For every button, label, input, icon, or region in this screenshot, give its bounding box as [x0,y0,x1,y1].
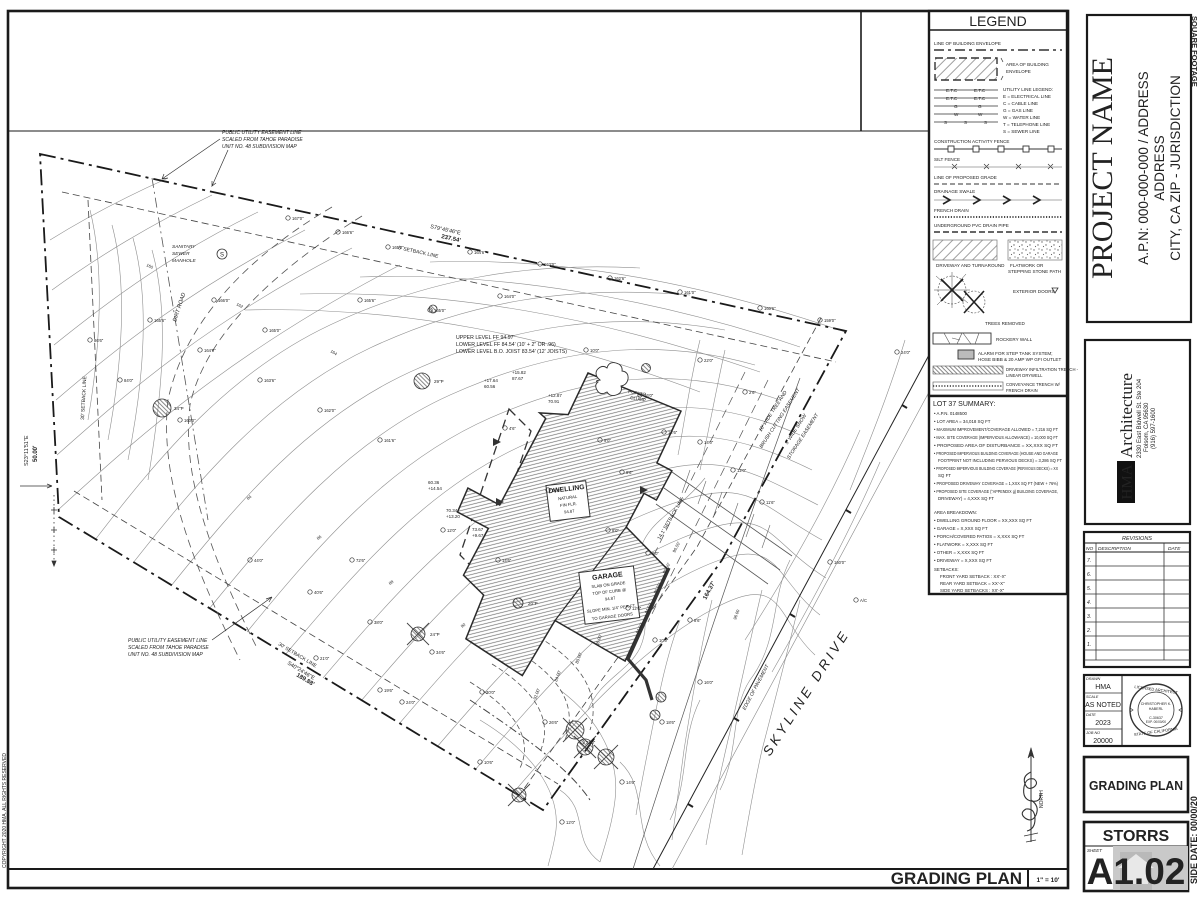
svg-text:UTILITY LINE LEGEND:: UTILITY LINE LEGEND: [1003,87,1053,92]
svg-text:163'0": 163'0" [544,262,556,267]
svg-text:W: W [954,112,959,117]
svg-text:S23°11'51"E: S23°11'51"E [24,435,30,466]
svg-text:5.: 5. [1087,586,1091,592]
svg-text:2330 East Bidwell St. Ste 204: 2330 East Bidwell St. Ste 204 [1137,378,1143,458]
svg-text:MANHOLE: MANHOLE [172,258,197,264]
svg-text:LOT 37 SUMMARY:: LOT 37 SUMMARY: [933,401,995,408]
svg-text:E.T.C: E.T.C [974,88,986,93]
svg-text:HMA: HMA [1120,464,1136,499]
svg-text:86'6": 86'6" [94,338,104,343]
svg-text:• MAX. SITE COVERAGE (IMPERVI: • MAX. SITE COVERAGE (IMPERVIOUS ALLOWAN… [934,435,1058,440]
svg-text:W = WATER LINE: W = WATER LINE [1003,115,1040,120]
svg-text:SANITARY: SANITARY [172,244,196,250]
svg-text:167'0": 167'0" [292,216,304,221]
svg-text:LOWER LEVEL B.O. JOIST 83.54': LOWER LEVEL B.O. JOIST 83.54' (12' JOIST… [456,349,567,355]
svg-text:12'0": 12'0" [632,606,642,611]
svg-text:8'6": 8'6" [626,470,633,475]
svg-text:162'6": 162'6" [614,276,626,281]
svg-text:60.56: 60.56 [484,384,496,389]
svg-text:E.T.C: E.T.C [946,96,958,101]
svg-text:HMA: HMA [1095,684,1111,691]
svg-text:UPPER LEVEL FF 94.97': UPPER LEVEL FF 94.97' [456,335,514,341]
svg-text:E.T.C: E.T.C [974,96,986,101]
svg-text:73.67: 73.67 [472,527,484,532]
svg-text:DESCRIPTION: DESCRIPTION [1098,546,1131,552]
svg-text:2023: 2023 [1095,720,1111,727]
svg-text:A/C: A/C [860,598,867,603]
svg-text:S = SEWER LINE: S = SEWER LINE [1003,129,1040,134]
svg-text:+14.54: +14.54 [428,486,442,491]
svg-text:159'0": 159'0" [824,318,836,323]
svg-text:6'0": 6'0" [652,551,659,556]
svg-text:166'0": 166'0" [218,298,230,303]
svg-text:11'6": 11'6" [766,500,775,505]
svg-text:161'6": 161'6" [384,438,396,443]
svg-text:EXP. 00/00/00: EXP. 00/00/00 [1146,720,1166,724]
svg-text:70.34: 70.34 [446,508,458,513]
svg-text:DRAWN: DRAWN [1086,677,1101,681]
svg-text:19'6": 19'6" [384,688,394,693]
svg-text:FLATWORK OR: FLATWORK OR [1010,263,1044,268]
svg-text:JOB NO: JOB NO [1085,731,1100,735]
svg-text:S: S [220,253,224,259]
svg-text:20000: 20000 [1093,738,1113,745]
svg-text:26'6": 26'6" [549,720,559,725]
svg-text:161'0": 161'0" [684,290,696,295]
svg-text:DATE: DATE [1168,546,1181,552]
svg-text:COPYRIGHT 2020 HMA. ALL RIGHT: COPYRIGHT 2020 HMA. ALL RIGHTS RESERVED [2,753,8,868]
svg-text:LEGEND: LEGEND [969,13,1027,29]
svg-text:GRADING PLAN: GRADING PLAN [1089,778,1183,793]
svg-text:6.: 6. [1087,572,1091,578]
svg-text:16'0": 16'0" [704,680,714,685]
svg-text:ENVELOPE: ENVELOPE [1006,69,1031,74]
svg-text:14'6": 14'6" [626,780,636,785]
svg-text:NORTH: NORTH [1039,790,1045,808]
svg-text:AREA BREAKDOWN:: AREA BREAKDOWN: [934,510,977,515]
svg-text:+12.87: +12.87 [548,393,562,398]
svg-text:• A.P.N. 0148500: • A.P.N. 0148500 [934,411,968,416]
svg-text:DRIVEWAY AND TURNAROUND: DRIVEWAY AND TURNAROUND [936,263,1005,268]
svg-text:DATE: DATE [1086,713,1096,717]
svg-text:LINEAR DRYWELL: LINEAR DRYWELL [1006,373,1043,378]
svg-text:UNIT NO. 48 SUBDIVISION MAP: UNIT NO. 48 SUBDIVISION MAP [222,144,297,150]
svg-text:70.91: 70.91 [548,399,560,404]
svg-text:165'6": 165'6" [364,298,376,303]
svg-text:SCALED FROM TAHOE PARADISE: SCALED FROM TAHOE PARADISE [128,645,209,651]
svg-text:C = CABLE LINE: C = CABLE LINE [1003,101,1038,106]
svg-text:40'6": 40'6" [314,590,324,595]
svg-text:10'0": 10'0" [590,348,600,353]
svg-text:LINE OF BUILDING ENVELOPE: LINE OF BUILDING ENVELOPE [934,41,1001,46]
svg-text:1" = 10': 1" = 10' [1037,877,1060,884]
svg-text:FOOTPRINT NOT INCLUDING PERVIO: FOOTPRINT NOT INCLUDING PERVIOUS DECKS) … [938,458,1062,463]
svg-text:165'0": 165'0" [434,308,446,313]
svg-text:• FLATWORK = X,XXX SQ FT: • FLATWORK = X,XXX SQ FT [934,542,993,547]
svg-text:NO: NO [1086,546,1093,552]
svg-text:FRENCH DRAIN: FRENCH DRAIN [934,208,969,213]
svg-text:SILT FENCE: SILT FENCE [934,157,960,162]
svg-text:T = TELEPHONE LINE: T = TELEPHONE LINE [1003,122,1050,127]
svg-text:14'0": 14'0" [704,440,714,445]
svg-text:12'0": 12'0" [737,468,747,473]
svg-text:84'0": 84'0" [124,378,134,383]
svg-text:CITY, CA ZIP - JURISDICTION: CITY, CA ZIP - JURISDICTION [1168,75,1183,261]
svg-text:34"P: 34"P [174,406,184,411]
svg-text:• PROPOSED IMPERVIOUS BUILDIN: • PROPOSED IMPERVIOUS BUILDING COVERAGE … [934,466,1058,471]
svg-text:+17.64: +17.64 [484,378,498,383]
svg-text:12'6": 12'6" [668,430,678,435]
svg-text:EXTERIOR DOORS: EXTERIOR DOORS [1013,289,1055,294]
svg-text:CONSTRUCTION ACTIVITY FENCE: CONSTRUCTION ACTIVITY FENCE [934,139,1009,144]
svg-text:S: S [984,120,987,125]
svg-text:LOWER LEVEL FF 84.54' (10' + 2: LOWER LEVEL FF 84.54' (10' + 2" OR .96) [456,342,556,348]
svg-text:W: W [978,112,983,117]
svg-text:164'0": 164'0" [504,294,516,299]
svg-text:24"P: 24"P [430,632,440,637]
svg-text:22'0": 22'0" [704,358,714,363]
svg-text:160'6": 160'6" [764,306,776,311]
svg-text:SCALE: SCALE [1086,695,1099,699]
svg-text:REVISIONS: REVISIONS [1122,536,1152,542]
svg-text:SEWER: SEWER [172,251,190,257]
svg-text:A1.02: A1.02 [1087,851,1186,892]
svg-text:• DRIVEWAY = X,XXX SQ FT: • DRIVEWAY = X,XXX SQ FT [934,558,992,563]
svg-text:164'0": 164'0" [204,348,216,353]
svg-text:14'6": 14'6" [502,558,512,563]
svg-text:PUBLIC UTILITY EASEMENT LINE: PUBLIC UTILITY EASEMENT LINE [128,638,208,644]
svg-text:165'6": 165'6" [154,318,166,323]
svg-text:G = GAS LINE: G = GAS LINE [1003,108,1033,113]
svg-text:+13.20: +13.20 [446,514,460,519]
svg-text:UNIT NO. 48 SUBDIVISION MAP: UNIT NO. 48 SUBDIVISION MAP [128,652,203,658]
svg-text:ALARM FOR STEP TANK SYSTEM;: ALARM FOR STEP TANK SYSTEM; [978,351,1053,356]
svg-text:24'0": 24'0" [406,700,416,705]
svg-text:21'0": 21'0" [320,656,330,661]
svg-text:ADDRESS: ADDRESS [1152,135,1167,200]
svg-text:STEPPING STONE PATH: STEPPING STONE PATH [1008,269,1061,274]
svg-text:DRAINAGE SWALE: DRAINAGE SWALE [934,189,975,194]
svg-text:12'0": 12'0" [447,528,457,533]
svg-text:CONVEYANCE TRENCH W/: CONVEYANCE TRENCH W/ [1006,382,1061,387]
svg-text:• PROPOSED AREA OF DISTURBANC: • PROPOSED AREA OF DISTURBANCE = XX,XXX … [934,443,1058,448]
svg-text:• DWELLING GROUND FLOOR = XX,: • DWELLING GROUND FLOOR = XX,XXX SQ FT [934,518,1032,523]
svg-text:FRENCH DRAIN: FRENCH DRAIN [1006,388,1038,393]
svg-text:E.T.C: E.T.C [946,88,958,93]
svg-text:E = ELECTRICAL LINE: E = ELECTRICAL LINE [1003,94,1051,99]
svg-text:160'0": 160'0" [184,418,196,423]
svg-text:4'6": 4'6" [509,426,516,431]
svg-text:• PROPOSED IMPERVIOUS BUILDIN: • PROPOSED IMPERVIOUS BUILDING COVERAGE … [934,451,1058,456]
svg-text:+9.67: +9.67 [472,533,484,538]
svg-text:G: G [978,104,982,109]
svg-text:DRIVEWAY) = 4,XXX SQ FT: DRIVEWAY) = 4,XXX SQ FT [938,496,994,501]
svg-text:34'6": 34'6" [436,650,446,655]
svg-text:G: G [954,104,958,109]
svg-text:A.P.N: 000-000-000 / ADDRESS: A.P.N: 000-000-000 / ADDRESS [1136,71,1151,264]
svg-text:164'6": 164'6" [474,250,486,255]
svg-text:10'0": 10'0" [659,638,669,643]
svg-text:• PROPOSED SITE COVERAGE ("AP: • PROPOSED SITE COVERAGE ("APPENDIX g) B… [934,489,1058,494]
svg-text:• PROPOSED DRIVEWAY COVERAGE: • PROPOSED DRIVEWAY COVERAGE = 1,XXX SQ … [934,481,1058,486]
svg-text:165'0": 165'0" [269,328,281,333]
svg-text:SETBACKS:: SETBACKS: [934,567,959,572]
svg-text:• PORCH/COVERED PATIOS = X,XX: • PORCH/COVERED PATIOS = X,XXX SQ FT [934,534,1025,539]
svg-text:TREES REMOVED: TREES REMOVED [985,321,1026,326]
svg-text:12'0": 12'0" [566,820,576,825]
svg-text:HABERL: HABERL [1149,707,1163,711]
svg-text:165'0": 165'0" [392,245,404,250]
svg-text:+15.82: +15.82 [512,370,526,375]
svg-text:• GARAGE = X,XXX SQ FT: • GARAGE = X,XXX SQ FT [934,526,988,531]
svg-text:16'0": 16'0" [644,393,654,398]
svg-text:PROJECT NAME: PROJECT NAME [1086,57,1119,279]
svg-text:FRONT YARD SETBACK : XX'-X": FRONT YARD SETBACK : XX'-X" [940,574,1007,579]
svg-text:SIDE YARD SETBACKS : XX'-X": SIDE YARD SETBACKS : XX'-X" [940,588,1005,593]
svg-text:4.: 4. [1087,600,1091,606]
svg-text:163'6": 163'6" [264,378,276,383]
svg-text:DRIVEWAY INFILTRATION TRENCH -: DRIVEWAY INFILTRATION TRENCH - [1006,367,1079,372]
svg-text:22'0": 22'0" [586,740,596,745]
svg-text:18'6": 18'6" [666,720,676,725]
svg-text:Architecture: Architecture [1117,373,1136,458]
svg-text:AREA OF BUILDING: AREA OF BUILDING [1006,62,1049,67]
svg-text:9'0": 9'0" [604,438,611,443]
svg-text:(916) 597-1600: (916) 597-1600 [1151,407,1157,449]
svg-text:STORRS: STORRS [1103,828,1170,845]
svg-text:29"P: 29"P [434,379,444,384]
svg-text:162'0": 162'0" [324,408,336,413]
svg-text:30'0": 30'0" [486,690,496,695]
svg-text:87.67: 87.67 [512,376,524,381]
svg-text:SIDE DATE: 00/00/20: SIDE DATE: 00/00/20 [1189,796,1199,884]
svg-text:60.36: 60.36 [428,480,440,485]
svg-text:SQ FT: SQ FT [938,473,951,478]
svg-text:LINE OF PROPOSED GRADE: LINE OF PROPOSED GRADE [934,175,997,180]
svg-text:7.: 7. [1087,558,1091,564]
svg-text:PUBLIC UTILITY EASEMENT LINE: PUBLIC UTILITY EASEMENT LINE [222,130,302,136]
svg-text:10'6": 10'6" [484,760,494,765]
svg-text:14'0": 14'0" [552,488,562,493]
svg-text:• OTHER = X,XXX SQ FT: • OTHER = X,XXX SQ FT [934,550,985,555]
svg-text:72'6": 72'6" [356,558,366,563]
svg-text:2.: 2. [1086,628,1091,634]
svg-text:AS NOTED: AS NOTED [1085,702,1121,709]
svg-text:Folsom, CA 95630: Folsom, CA 95630 [1144,402,1150,452]
svg-text:8'0": 8'0" [612,528,619,533]
svg-text:1.: 1. [1087,642,1091,648]
svg-text:• LOT AREA = 34,018 SQ FT: • LOT AREA = 34,018 SQ FT [934,419,991,424]
svg-text:166'6": 166'6" [342,230,354,235]
svg-text:REAR YARD SETBACK = XX'-X": REAR YARD SETBACK = XX'-X" [940,581,1005,586]
svg-text:38'0": 38'0" [374,620,384,625]
svg-text:160'0": 160'0" [834,560,846,565]
svg-text:HOSE BIBB & 20 AMP WP GFI OUTL: HOSE BIBB & 20 AMP WP GFI OUTLET [978,357,1062,362]
svg-text:UNDERGROUND PVC DRAIN PIPE: UNDERGROUND PVC DRAIN PIPE [934,223,1009,228]
svg-text:CHRISTOPHER K.: CHRISTOPHER K. [1141,702,1172,706]
svg-text:2'6": 2'6" [749,390,756,395]
svg-text:3.: 3. [1087,614,1091,620]
svg-text:GRADING PLAN: GRADING PLAN [891,869,1022,888]
svg-text:S: S [964,120,967,125]
svg-text:44'0": 44'0" [254,558,264,563]
svg-text:SCALED FROM TAHOE PARADISE: SCALED FROM TAHOE PARADISE [222,137,303,143]
svg-text:8'6": 8'6" [694,618,701,623]
svg-text:24'0": 24'0" [901,350,911,355]
svg-text:• MAXIMUM IMPROVEMENT/COVERAG: • MAXIMUM IMPROVEMENT/COVERAGE ALLOWED =… [934,427,1058,432]
svg-text:S: S [944,120,947,125]
svg-text:20"P: 20"P [528,601,538,606]
svg-text:ROCKERY WALL: ROCKERY WALL [996,337,1033,342]
svg-text:50.00': 50.00' [33,445,39,462]
